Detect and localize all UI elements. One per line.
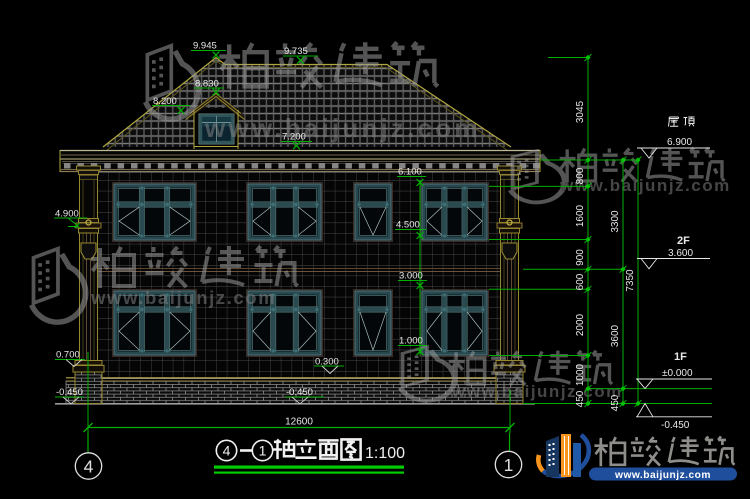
svg-text:600: 600 (575, 273, 586, 290)
svg-text:0.700: 0.700 (56, 350, 80, 361)
svg-text:450: 450 (575, 390, 586, 407)
svg-text:4: 4 (223, 443, 231, 459)
svg-text:7.200: 7.200 (282, 132, 306, 143)
svg-text:3.600: 3.600 (668, 248, 693, 259)
svg-text:3.000: 3.000 (399, 271, 423, 282)
svg-text:1.000: 1.000 (399, 336, 423, 347)
svg-text:www.baijunjz.com: www.baijunjz.com (90, 287, 276, 308)
svg-text:800: 800 (575, 167, 586, 184)
svg-text:6.100: 6.100 (398, 167, 422, 178)
svg-text:3300: 3300 (610, 210, 621, 233)
svg-text:900: 900 (575, 249, 586, 266)
svg-text:4: 4 (84, 456, 94, 476)
svg-text:12600: 12600 (285, 417, 313, 428)
svg-text:1600: 1600 (575, 204, 586, 227)
svg-text:3045: 3045 (575, 100, 586, 123)
svg-text:2000: 2000 (575, 313, 586, 336)
svg-text:6.900: 6.900 (667, 137, 692, 148)
svg-text:www.baijunjz.com: www.baijunjz.com (451, 382, 623, 401)
svg-text:2F: 2F (677, 235, 690, 247)
svg-text:1: 1 (504, 455, 514, 475)
svg-text:-0.450: -0.450 (286, 387, 313, 398)
svg-text:-0.450: -0.450 (56, 387, 83, 398)
svg-text:±0.000: ±0.000 (662, 368, 693, 379)
svg-text:4.500: 4.500 (396, 220, 420, 231)
svg-text:www.baijunjz.com: www.baijunjz.com (614, 470, 711, 481)
svg-text:7350: 7350 (625, 269, 636, 292)
svg-text:1F: 1F (674, 351, 687, 363)
svg-text:9.735: 9.735 (284, 46, 308, 57)
svg-text:3600: 3600 (610, 324, 621, 347)
svg-text:1: 1 (259, 443, 267, 459)
svg-text:9.945: 9.945 (193, 41, 217, 52)
svg-text:www.baijunjz.com: www.baijunjz.com (204, 113, 481, 143)
svg-text:-0.450: -0.450 (661, 420, 690, 431)
svg-text:450: 450 (610, 394, 621, 411)
svg-text:1000: 1000 (575, 363, 586, 386)
svg-text:1:100: 1:100 (365, 445, 405, 462)
